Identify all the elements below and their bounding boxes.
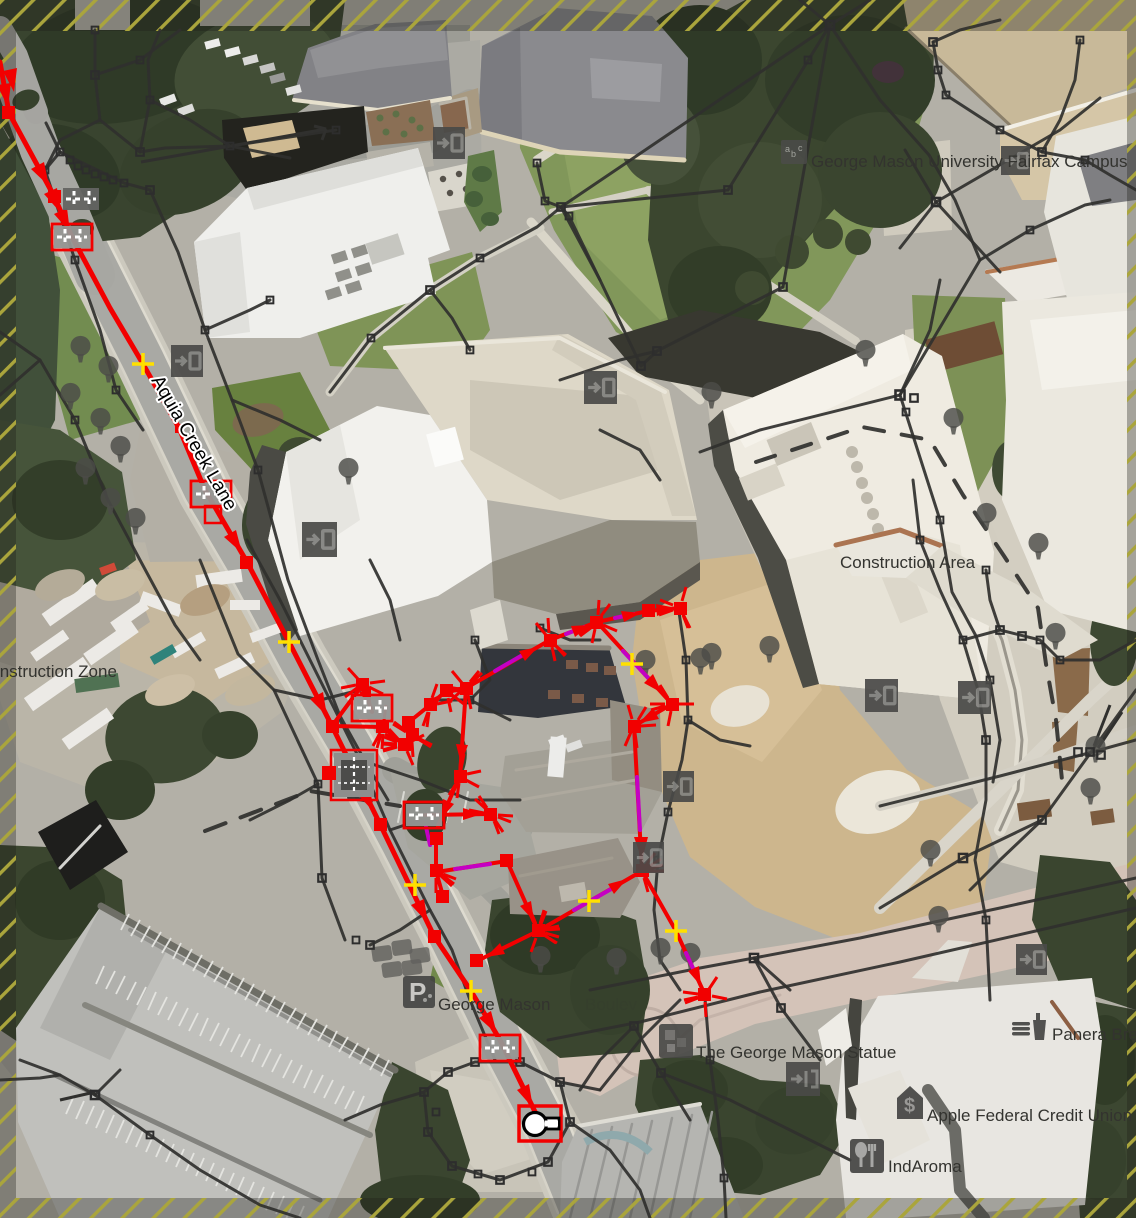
svg-text:IndAroma: IndAroma bbox=[888, 1157, 962, 1176]
svg-text:Apple Federal Credit Union: Apple Federal Credit Union bbox=[927, 1106, 1132, 1125]
svg-text:George Mason University Fairfa: George Mason University Fairfax Campus bbox=[811, 152, 1128, 171]
svg-text:P: P bbox=[409, 977, 426, 1007]
svg-text:a: a bbox=[785, 144, 790, 154]
svg-text:Construction Zone: Construction Zone bbox=[0, 662, 117, 681]
svg-text:The George Mason Statue: The George Mason Statue bbox=[696, 1043, 896, 1062]
svg-text:George Mason: George Mason bbox=[438, 995, 550, 1014]
svg-text:Boulev: Boulev bbox=[585, 995, 637, 1014]
svg-text:Panera Bre: Panera Bre bbox=[1052, 1025, 1136, 1044]
svg-text:$: $ bbox=[904, 1095, 915, 1117]
svg-text:c: c bbox=[798, 143, 803, 153]
svg-text:b: b bbox=[791, 149, 796, 159]
svg-text:Construction Area: Construction Area bbox=[840, 553, 976, 572]
